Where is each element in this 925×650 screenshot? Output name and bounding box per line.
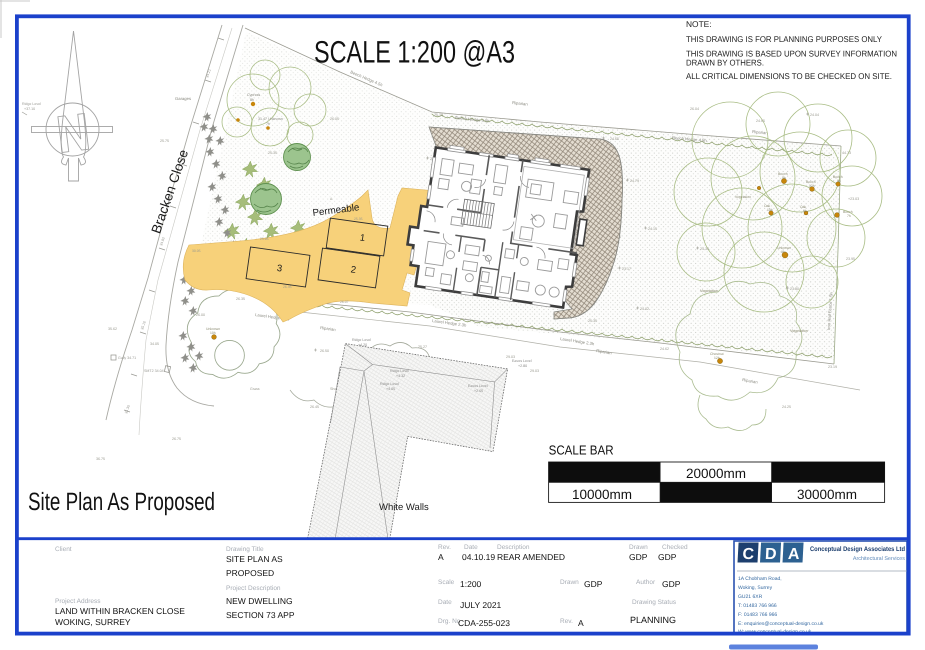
svg-text:7h: 7h xyxy=(847,214,851,218)
svg-text:Woking, Surrey: Woking, Surrey xyxy=(738,585,773,591)
svg-text:1:200: 1:200 xyxy=(460,579,482,589)
svg-text:Eaves Level: Eaves Level xyxy=(512,359,532,363)
svg-text:Description: Description xyxy=(497,544,530,551)
svg-text:Site Plan As Proposed: Site Plan As Proposed xyxy=(28,488,215,516)
svg-text:Drawn: Drawn xyxy=(629,544,648,551)
svg-text:30.05: 30.05 xyxy=(192,249,201,253)
svg-text:26.05: 26.05 xyxy=(330,117,339,121)
svg-text:GU21 6XR: GU21 6XR xyxy=(738,594,763,600)
svg-text:REAR AMENDED: REAR AMENDED xyxy=(497,552,565,562)
svg-text:GDP: GDP xyxy=(584,579,603,589)
svg-text:29.03: 29.03 xyxy=(530,369,539,373)
svg-text:26.04: 26.04 xyxy=(690,107,699,111)
svg-text:GDP: GDP xyxy=(662,579,681,589)
svg-text:ALL CRITICAL DIMENSIONS TO BE: ALL CRITICAL DIMENSIONS TO BE CHECKED ON… xyxy=(686,71,892,81)
svg-text:C: C xyxy=(742,546,755,563)
svg-text:7h: 7h xyxy=(266,122,270,126)
svg-text:NEW DWELLING: NEW DWELLING xyxy=(226,596,293,606)
svg-text:SITE PLAN AS: SITE PLAN AS xyxy=(226,554,283,564)
svg-text:9h: 9h xyxy=(837,179,841,183)
svg-text:10000mm: 10000mm xyxy=(572,487,632,502)
svg-text:Gully 34.71: Gully 34.71 xyxy=(118,356,136,360)
svg-text:Rev.: Rev. xyxy=(560,618,573,625)
svg-text:10h: 10h xyxy=(210,331,216,335)
svg-text:24.33: 24.33 xyxy=(700,247,709,251)
svg-text:E: enquiries@conceptual-desig: E: enquiries@conceptual-design.co.uk xyxy=(738,621,824,627)
svg-text:GDP: GDP xyxy=(629,552,648,562)
svg-text:SECTION 73 APP: SECTION 73 APP xyxy=(226,610,295,620)
svg-text:Scale: Scale xyxy=(438,579,455,586)
svg-text:26.00: 26.00 xyxy=(196,313,205,317)
svg-text:20000mm: 20000mm xyxy=(686,466,746,481)
svg-text:T: 01483 766 966: T: 01483 766 966 xyxy=(738,603,777,609)
svg-text:26.35: 26.35 xyxy=(283,285,292,289)
svg-text:Author: Author xyxy=(636,579,656,586)
svg-text:Grass: Grass xyxy=(250,387,260,391)
svg-text:SCALE 1:200 @A3: SCALE 1:200 @A3 xyxy=(314,35,515,70)
svg-text:PROPOSED: PROPOSED xyxy=(226,568,274,578)
svg-text:26.35: 26.35 xyxy=(236,297,245,301)
svg-text:Client: Client xyxy=(55,546,72,553)
svg-text:10h: 10h xyxy=(767,208,773,212)
svg-text:Ridge Level: Ridge Level xyxy=(380,382,399,386)
svg-text:30000mm: 30000mm xyxy=(797,487,857,502)
svg-text:A: A xyxy=(578,618,584,628)
svg-text:SMT2 34.04: SMT2 34.04 xyxy=(144,369,164,373)
svg-text:F: 01483 766 966: F: 01483 766 966 xyxy=(738,612,777,618)
svg-text:34.05: 34.05 xyxy=(150,342,159,346)
svg-text:35.62: 35.62 xyxy=(108,327,117,331)
svg-text:44.73: 44.73 xyxy=(842,151,851,155)
svg-text:Garages: Garages xyxy=(175,96,191,101)
svg-text:Vegetation: Vegetation xyxy=(790,329,808,333)
svg-text:23.19: 23.19 xyxy=(828,365,837,369)
svg-text:24.65: 24.65 xyxy=(610,137,619,141)
svg-text:NOTE:: NOTE: xyxy=(686,19,712,29)
svg-text:1A Chobham Road,: 1A Chobham Road, xyxy=(738,576,782,582)
svg-text:Vegetation: Vegetation xyxy=(700,289,718,293)
svg-text:8h: 8h xyxy=(250,98,254,102)
svg-text:23.80: 23.80 xyxy=(790,287,799,291)
svg-text:PLANNING: PLANNING xyxy=(630,615,676,625)
svg-text:23.17: 23.17 xyxy=(622,267,631,271)
svg-text:24.65: 24.65 xyxy=(756,119,765,123)
svg-text:Drawing Title: Drawing Title xyxy=(226,546,264,553)
svg-text:+37.10: +37.10 xyxy=(24,107,35,111)
svg-text:25.35: 25.35 xyxy=(588,319,597,323)
svg-text:26.50: 26.50 xyxy=(320,349,329,353)
svg-text:24.25: 24.25 xyxy=(782,405,791,409)
svg-text:9h: 9h xyxy=(781,250,785,254)
svg-text:DRAWN BY OTHERS.: DRAWN BY OTHERS. xyxy=(686,58,764,68)
svg-text:Ridge Level: Ridge Level xyxy=(352,338,371,342)
svg-text:25.27: 25.27 xyxy=(418,345,427,349)
svg-text:+4.32: +4.32 xyxy=(396,374,405,378)
svg-text:24.62: 24.62 xyxy=(660,347,669,351)
svg-text:White Walls: White Walls xyxy=(379,502,429,513)
svg-text:Conceptual Design Associates L: Conceptual Design Associates Ltd xyxy=(810,546,905,553)
svg-text:26.75: 26.75 xyxy=(172,437,181,441)
svg-text:24.02: 24.02 xyxy=(640,307,649,311)
svg-text:25.35: 25.35 xyxy=(268,151,277,155)
svg-text:+4.20: +4.20 xyxy=(358,343,367,347)
svg-text:A: A xyxy=(787,546,800,563)
svg-text:Project Description: Project Description xyxy=(226,585,281,592)
svg-text:+2.80: +2.80 xyxy=(518,364,527,368)
svg-text:24.15: 24.15 xyxy=(648,227,657,231)
svg-text:A: A xyxy=(438,552,444,562)
svg-text:9h: 9h xyxy=(782,176,786,180)
svg-text:+2.65: +2.65 xyxy=(474,389,483,393)
svg-text:JULY 2021: JULY 2021 xyxy=(460,600,502,610)
svg-text:25.75: 25.75 xyxy=(160,139,169,143)
svg-text:WOKING, SURREY: WOKING, SURREY xyxy=(55,617,131,627)
svg-text:Date: Date xyxy=(438,599,452,606)
svg-text:26.45: 26.45 xyxy=(310,405,319,409)
svg-text:12h: 12h xyxy=(809,184,815,188)
svg-text:CDA-255-023: CDA-255-023 xyxy=(458,618,510,628)
svg-text:04.10.19: 04.10.19 xyxy=(462,552,495,562)
svg-text:24.79: 24.79 xyxy=(630,179,639,183)
svg-text:Ridge Level: Ridge Level xyxy=(390,369,409,373)
svg-text:31.47 Unknown: 31.47 Unknown xyxy=(258,117,283,121)
svg-text:25.95: 25.95 xyxy=(260,237,269,241)
svg-text:24.04: 24.04 xyxy=(810,113,819,117)
svg-text:25.10: 25.10 xyxy=(434,113,443,117)
svg-text:+23.03: +23.03 xyxy=(848,197,859,201)
svg-text:23.95: 23.95 xyxy=(846,257,855,261)
svg-text:Drawing Status: Drawing Status xyxy=(632,599,677,606)
svg-text:Ridge Level: Ridge Level xyxy=(22,102,41,106)
svg-text:THIS DRAWING IS FOR PLANNING P: THIS DRAWING IS FOR PLANNING PURPOSES ON… xyxy=(686,34,882,44)
svg-text:9h: 9h xyxy=(803,209,807,213)
svg-text:SCALE BAR: SCALE BAR xyxy=(549,443,614,458)
svg-text:Date: Date xyxy=(464,544,478,551)
svg-text:26.07: 26.07 xyxy=(340,300,349,304)
svg-text:Drawn: Drawn xyxy=(560,579,579,586)
svg-text:Vegetation: Vegetation xyxy=(735,195,751,199)
svg-text:Architectural Services: Architectural Services xyxy=(853,556,905,562)
svg-text:Eaves Level: Eaves Level xyxy=(468,384,488,388)
svg-text:GDP: GDP xyxy=(658,552,677,562)
svg-text:D: D xyxy=(764,546,776,563)
svg-text:Cypress: Cypress xyxy=(247,93,260,97)
svg-text:36.75: 36.75 xyxy=(96,457,105,461)
svg-text:12h: 12h xyxy=(714,356,720,360)
svg-text:LAND WITHIN BRACKEN CLOSE: LAND WITHIN BRACKEN CLOSE xyxy=(55,606,185,616)
svg-text:25.35: 25.35 xyxy=(354,217,363,221)
svg-text:Checked: Checked xyxy=(662,544,688,551)
svg-text:Rev.: Rev. xyxy=(438,544,451,551)
svg-text:Project Address: Project Address xyxy=(55,598,101,605)
svg-text:+4.05: +4.05 xyxy=(386,387,395,391)
